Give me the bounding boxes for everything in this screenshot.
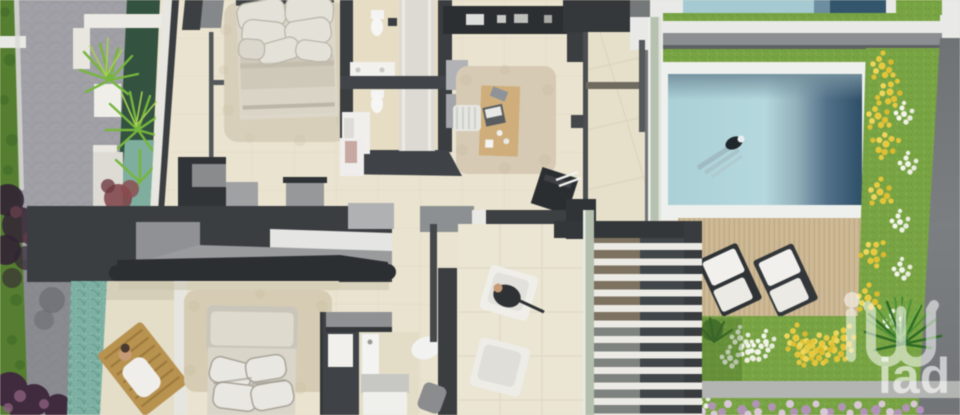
svg-text:iad: iad [878, 348, 950, 404]
